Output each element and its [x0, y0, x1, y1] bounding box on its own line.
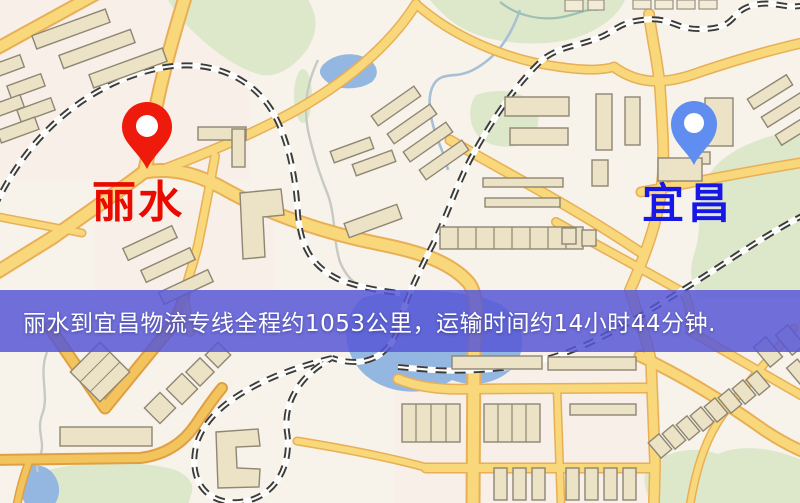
map-graphic: 丽水 宜昌	[0, 0, 800, 503]
screenshot: 丽水 宜昌 丽水到宜昌物流专线全程约1053公里，运输时间约14小时44分钟.	[0, 0, 800, 503]
route-info-text: 丽水到宜昌物流专线全程约1053公里，运输时间约14小时44分钟.	[23, 304, 716, 338]
destination-label: 宜昌	[642, 179, 734, 228]
route-info-banner: 丽水到宜昌物流专线全程约1053公里，运输时间约14小时44分钟.	[0, 290, 800, 352]
origin-label: 丽水	[92, 177, 184, 228]
